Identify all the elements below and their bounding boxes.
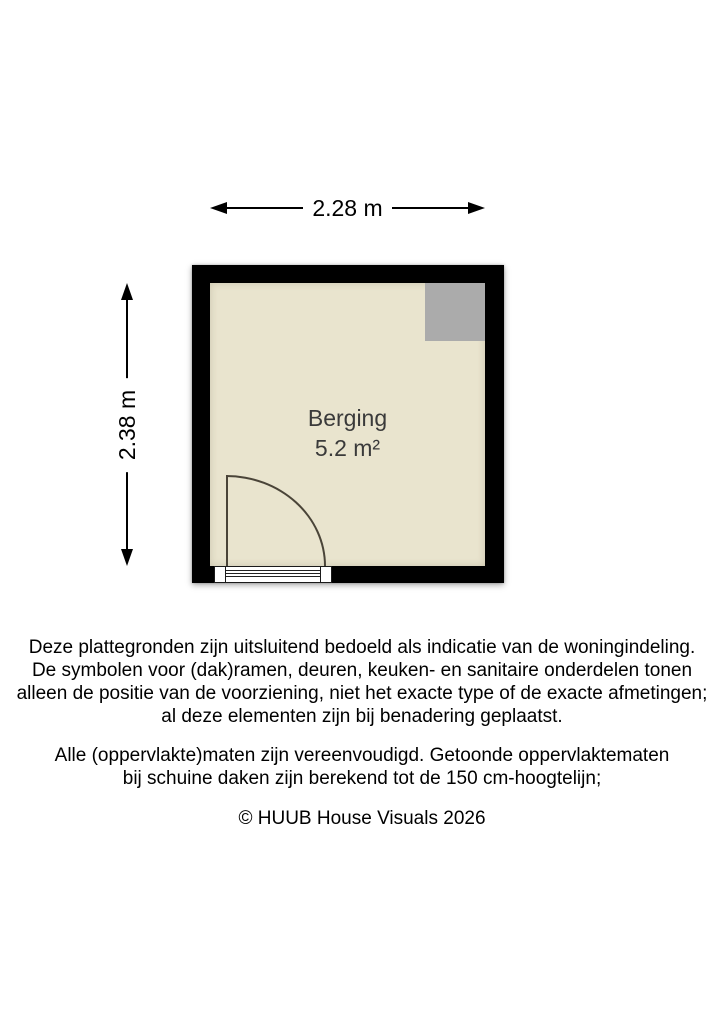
door-swing-arc [226,475,326,566]
floorplan: Berging 5.2 m² [192,265,504,583]
disclaimer-line: De symbolen voor (dak)ramen, deuren, keu… [0,659,724,682]
disclaimer-line: al deze elementen zijn bij benadering ge… [0,705,724,728]
disclaimer-line: bij schuine daken zijn berekend tot de 1… [0,767,724,790]
disclaimer-paragraph-1: Deze plattegronden zijn uitsluitend bedo… [0,636,724,728]
arrow-up-icon [121,283,133,300]
dimension-width: 2.28 m [210,197,485,219]
disclaimer-paragraph-2: Alle (oppervlakte)maten zijn vereenvoudi… [0,744,724,790]
dimension-height: 2.38 m [115,283,139,566]
door-threshold [214,566,332,583]
dimension-height-label: 2.38 m [116,377,138,471]
door-leaf [226,475,228,566]
disclaimer-line: Alle (oppervlakte)maten zijn vereenvoudi… [0,744,724,767]
door-jamb-left [215,567,226,582]
room-label: Berging 5.2 m² [210,403,485,463]
arrow-left-icon [210,202,227,214]
door-jamb-right [320,567,331,582]
door-sill [226,567,320,582]
floorplan-page: 2.28 m 2.38 m Berging 5.2 m² Deze platte… [0,0,724,1024]
room-area: 5.2 m² [210,433,485,463]
arrow-down-icon [121,549,133,566]
copyright-text: © HUUB House Visuals 2026 [0,807,724,830]
dimension-width-label: 2.28 m [303,197,391,219]
room-berging: Berging 5.2 m² [210,283,485,566]
arrow-right-icon [468,202,485,214]
disclaimer-line: alleen de positie van de voorziening, ni… [0,682,724,705]
disclaimer-line: Deze plattegronden zijn uitsluitend bedo… [0,636,724,659]
disclaimer: Deze plattegronden zijn uitsluitend bedo… [0,636,724,830]
room-name: Berging [210,403,485,433]
gray-corner-block [425,283,485,341]
